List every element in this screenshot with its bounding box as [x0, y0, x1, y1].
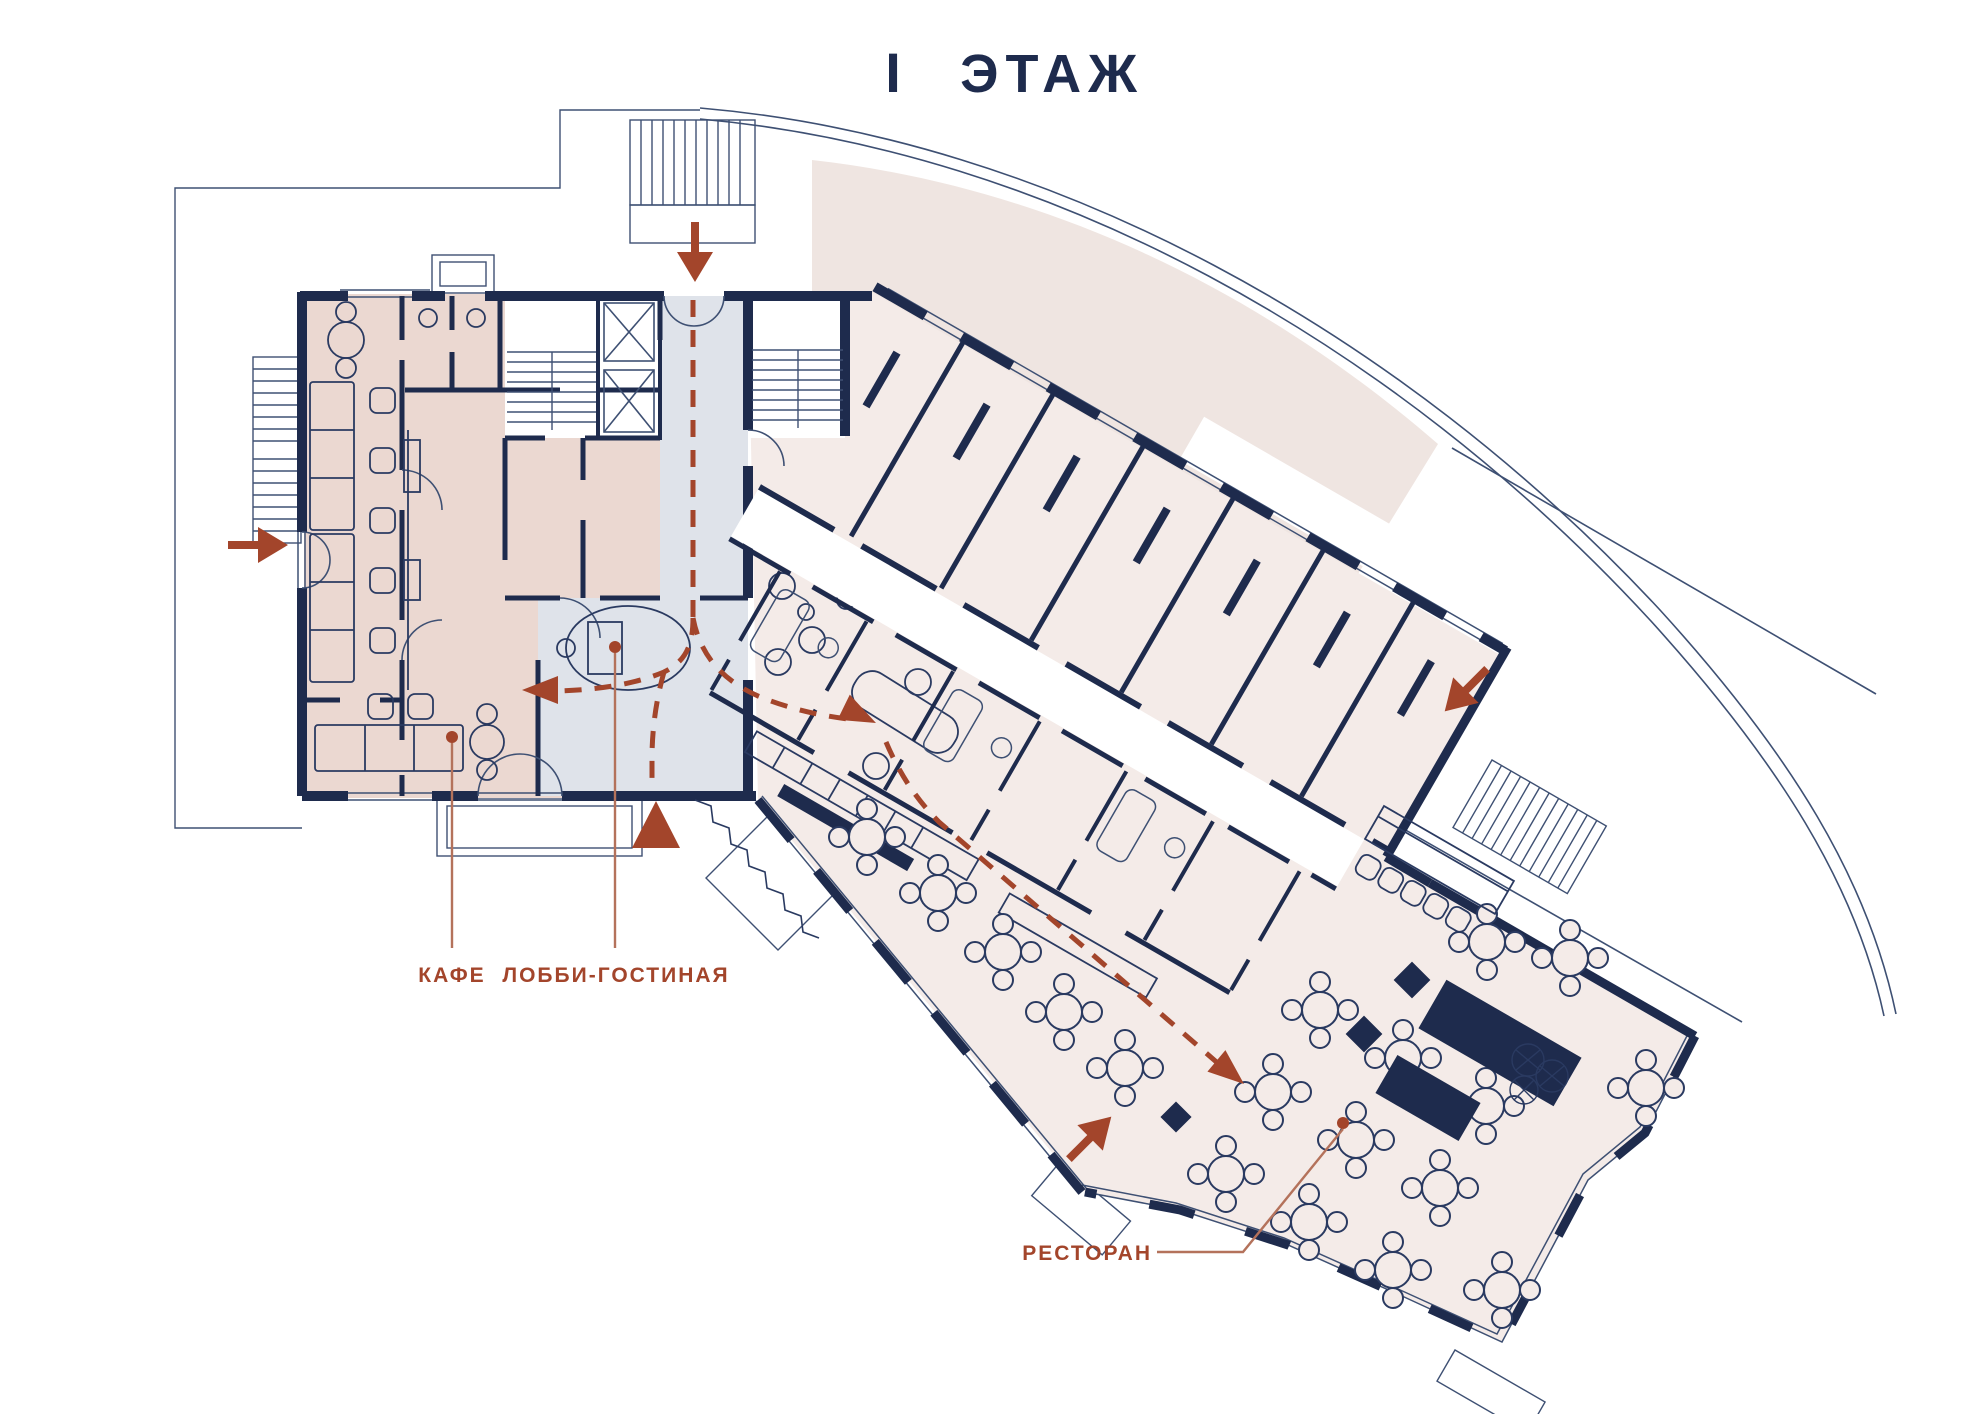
west-stairs: [253, 357, 301, 543]
stairwell-b: [748, 296, 845, 438]
floor-plan-drawing: I ЭТАЖ: [0, 0, 1980, 1414]
lobby-label: ЛОББИ-ГОСТИНАЯ: [502, 964, 729, 987]
elevator-shaft-zone: [598, 296, 660, 438]
floor-title-numeral: I: [885, 41, 901, 104]
north-entrance-arrow: [677, 222, 713, 282]
floor-plan-page: I ЭТАЖ: [0, 0, 1980, 1414]
west-entrance-arrow: [228, 527, 288, 563]
restaurant-label: РЕСТОРАН: [1022, 1242, 1152, 1265]
ramp-hatch: [641, 120, 740, 205]
floor-title-word: ЭТАЖ: [960, 44, 1144, 104]
cafe-label: КАФЕ: [418, 964, 485, 987]
main-entrance-triangle: [632, 801, 680, 848]
